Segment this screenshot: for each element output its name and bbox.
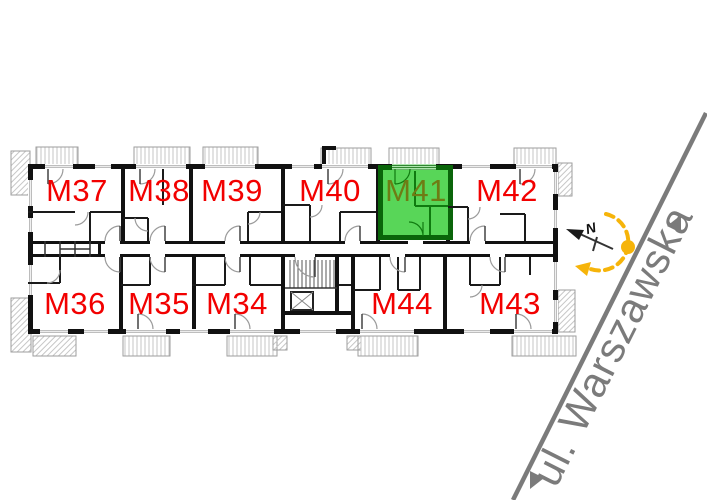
unit-label-m35: M35 [128,286,190,321]
rotation-arrowhead [575,262,591,276]
rotation-dot [621,240,635,254]
unit-label-m44: M44 [371,286,433,321]
unit-label-m39: M39 [201,173,263,208]
north-label: N [584,219,599,237]
unit-label-m36: M36 [44,286,106,321]
floor-plan-svg: M37 M38 M39 M40 M41 M42 M36 M35 M34 M44 … [0,0,707,500]
unit-label-m43: M43 [479,286,541,321]
unit-label-m41-highlighted: M41 [385,173,447,208]
unit-label-m38: M38 [128,173,190,208]
unit-label-m34: M34 [206,286,268,321]
unit-label-m40: M40 [299,173,361,208]
corridor-walls [28,241,553,257]
staircase [285,260,337,310]
unit-label-m37: M37 [46,173,108,208]
unit-m41-window [392,164,436,170]
floor-plan-page: M37 M38 M39 M40 M41 M42 M36 M35 M34 M44 … [0,0,707,500]
north-arrow-icon: N [566,219,613,251]
unit-label-m42: M42 [476,173,538,208]
